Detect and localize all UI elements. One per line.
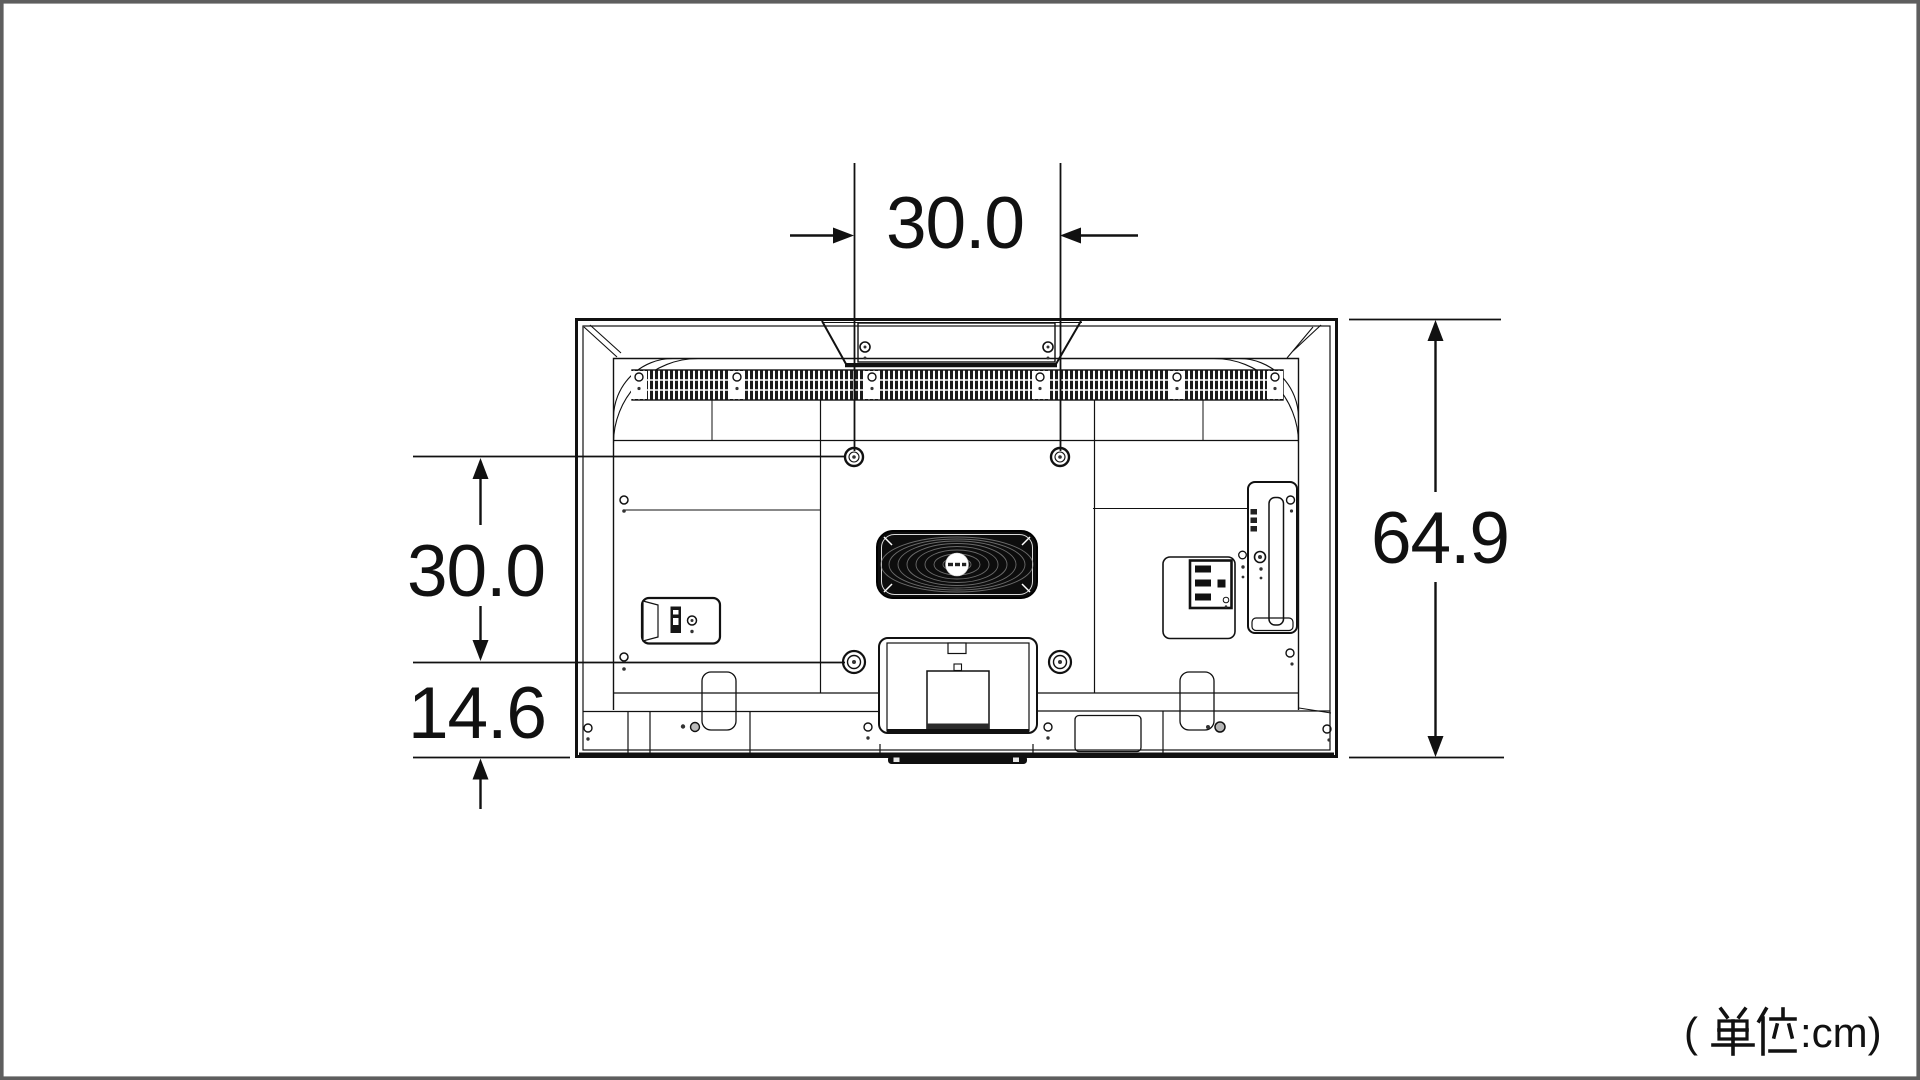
arrowhead-left-icon: [1060, 228, 1081, 244]
dimension-top-width: 30.0: [790, 163, 1138, 451]
diagram-canvas: 30.0 30.0 14.6 64.9 (: [0, 0, 1920, 1080]
usb-panel: [642, 598, 720, 644]
dimension-label-bottom-offset: 14.6: [408, 673, 546, 754]
arrowhead-right-icon: [833, 228, 854, 244]
left-panel-screws: [620, 496, 628, 671]
hdmi-slot: [1195, 566, 1211, 573]
unit-label: ( :cm): [1684, 1009, 1882, 1056]
vent-grille: [631, 370, 1283, 400]
dimension-label-vesa-vertical: 30.0: [407, 531, 545, 612]
unit-label-open: (: [1684, 1009, 1698, 1056]
speaker-hub-marks: [948, 563, 966, 566]
bottom-terminal-panel: [1163, 557, 1235, 639]
vesa-hole-bottom-left: [843, 651, 865, 673]
unit-kanji-tan-icon: [1713, 1009, 1753, 1054]
side-terminal-panel: [1248, 482, 1297, 633]
arrowhead-down-icon: [1428, 736, 1444, 757]
hdmi-slot: [1195, 594, 1211, 601]
hdmi-slot: [1195, 580, 1211, 587]
tv-rear-dimension-diagram: 30.0 30.0 14.6 64.9 (: [0, 0, 1920, 1080]
rear-screw-trio: [1239, 551, 1247, 578]
label-plate: [1075, 716, 1141, 752]
wall-spacer-boss-left: [702, 672, 736, 730]
side-terminal-slot: [1269, 498, 1284, 626]
arrowhead-up-icon: [1428, 320, 1444, 341]
dimension-overall-height: 64.9: [1349, 320, 1509, 758]
stand-cover: [879, 638, 1037, 733]
vesa-hole-bottom-right: [1049, 651, 1071, 673]
unit-kanji-i-icon: [1759, 1009, 1795, 1054]
speaker-woofer: [877, 531, 1037, 598]
arrowhead-up-icon: [473, 458, 489, 479]
bottom-bar-details: [584, 649, 1331, 755]
dimension-label-overall-height: 64.9: [1371, 498, 1509, 579]
unit-label-close: :cm): [1800, 1009, 1882, 1056]
arrowhead-up-icon: [473, 759, 489, 780]
wall-spacer-boss-right: [1180, 672, 1214, 730]
arrowhead-down-icon: [473, 640, 489, 661]
dimension-label-top-width: 30.0: [886, 183, 1024, 264]
